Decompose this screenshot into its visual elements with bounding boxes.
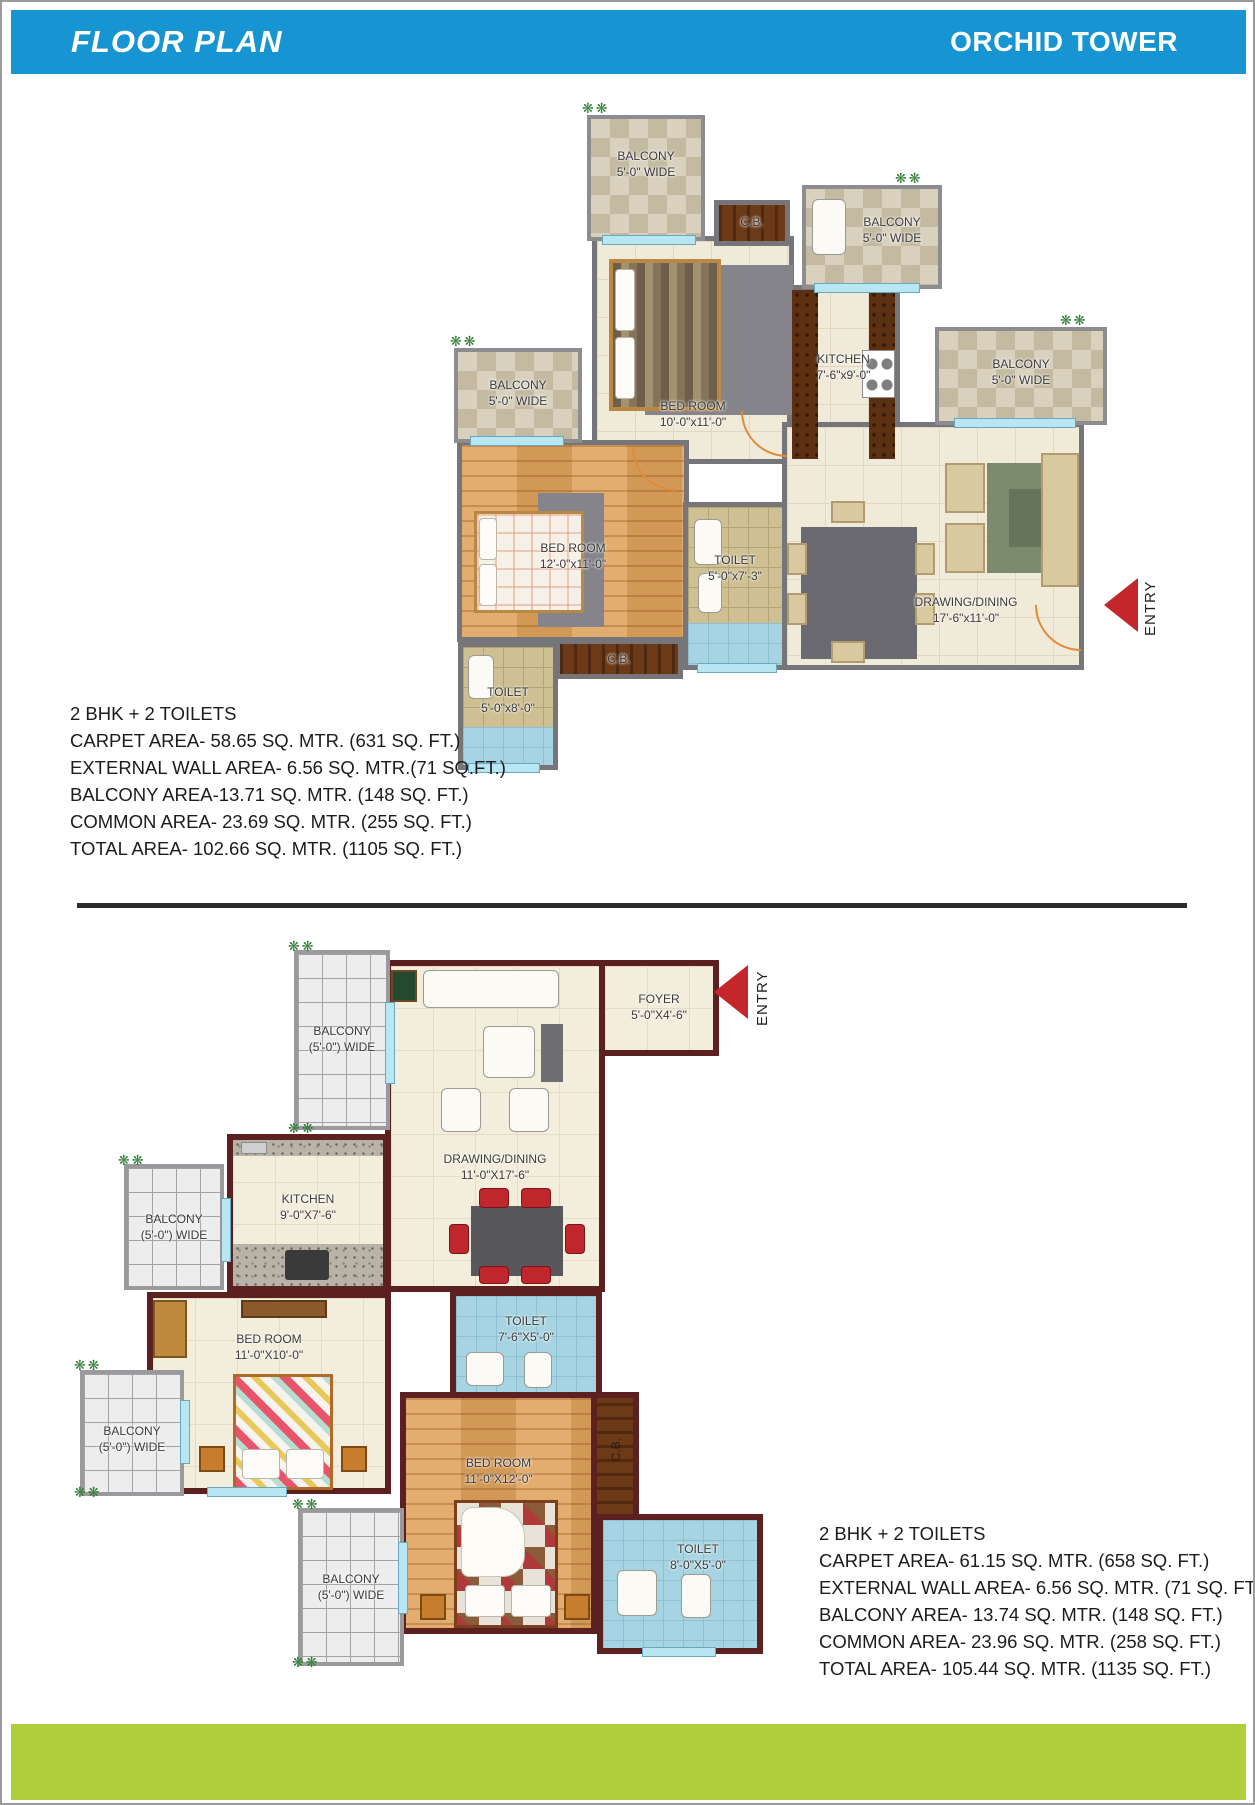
entry-arrow-icon [714,965,748,1019]
pillow [242,1449,280,1479]
tower-name: ORCHID TOWER [950,26,1178,58]
room-balcony-bottom: BALCONY (5'-0") WIDE [298,1508,404,1666]
room-label: BED ROOM 11'-0"X10'-0" [153,1332,385,1363]
pillow [615,269,635,331]
pillow [465,1585,505,1617]
toilet-floor-blue [688,623,782,665]
room-cb-top: C.B. [714,200,790,246]
room-bedroom-top: BED ROOM 10'-0"x11'-0" [592,236,794,464]
window-strip [602,235,696,245]
armchair [441,1088,481,1132]
room-label: KITCHEN 9'-0"X7'-6" [233,1192,383,1223]
room-label: FOYER 5'-0"X4'-6" [605,992,713,1023]
window-strip [814,283,920,293]
room-balcony-top-left: BALCONY 5'-0" WIDE [587,115,705,241]
section-divider [77,903,1187,908]
bed [233,1374,333,1490]
side-table [420,1594,446,1620]
room-label: C.B. [719,215,785,231]
balcony-area: BALCONY AREA-13.71 SQ. MTR. (148 SQ. FT.… [70,781,506,808]
armchair [945,463,985,513]
room-balcony-upper-right: BALCONY 5'-0" WIDE [802,185,942,289]
plant-icon: ❋❋ [288,938,315,955]
room-label: BALCONY (5'-0") WIDE [302,1572,400,1603]
washbasin-icon [812,199,846,255]
plant-icon: ❋❋ [450,333,477,350]
room-toilet-mid: TOILET 5'-0"x7'-3" [683,502,787,670]
room-toilet-1: TOILET 7'-6"X5'-0" [450,1290,602,1398]
plan1-area-statement: 2 BHK + 2 TOILETS CARPET AREA- 58.65 SQ.… [70,700,506,862]
room-label: C.B. [609,1438,623,1461]
total-area: TOTAL AREA- 102.66 SQ. MTR. (1105 SQ. FT… [70,835,506,862]
header-bar: FLOOR PLAN ORCHID TOWER [11,10,1246,74]
sofa-top [423,970,559,1008]
room-label: TOILET 7'-6"X5'-0" [456,1314,596,1345]
armchair [509,1088,549,1132]
room-balcony-top: BALCONY (5'-0") WIDE [294,950,390,1130]
plant-icon: ❋❋ [118,1152,145,1169]
plant-icon: ❋❋ [292,1654,319,1671]
chair [787,543,807,575]
room-balcony-left-upper: BALCONY (5'-0") WIDE [124,1164,224,1290]
dining-table [801,527,917,659]
entry-label: ENTRY [754,966,771,1026]
balcony-area: BALCONY AREA- 13.74 SQ. MTR. (148 SQ. FT… [819,1601,1255,1628]
room-label: BALCONY (5'-0") WIDE [128,1212,220,1243]
chair-red [479,1266,509,1284]
room-label: TOILET 8'-0"X5'-0" [639,1542,757,1573]
pillow [615,337,635,399]
plant-icon: ❋❋ [895,170,922,187]
room-label: BALCONY (5'-0") WIDE [84,1424,180,1455]
sofa-three-seater [1041,453,1079,587]
window-strip [697,663,777,673]
room-bedroom-2: BED ROOM 11'-0"X12'-0" [400,1392,597,1634]
bed [454,1500,558,1628]
window-strip [385,1002,395,1084]
room-cb-bottom: C.B. [555,639,683,679]
tv-unit [541,1024,563,1082]
room-drawing-dining-1: DRAWING/DINING 17'-6"x11'-0" [782,422,1084,670]
footer-bar [11,1724,1246,1800]
room-label: BALCONY 5'-0" WIDE [939,357,1103,388]
room-label: KITCHEN 7'-6"x9'-0" [792,352,895,383]
chair-red [449,1224,469,1254]
carpet-area: CARPET AREA- 61.15 SQ. MTR. (658 SQ. FT.… [819,1547,1255,1574]
side-table [564,1594,590,1620]
coffee-table [483,1026,535,1078]
room-label: DRAWING/DINING 11'-0"X17'-6" [391,1152,599,1183]
plant-icon: ❋❋ [74,1357,101,1374]
room-label: BALCONY 5'-0" WIDE [846,215,938,246]
rug-inner [1009,489,1043,547]
bed [609,259,721,411]
plant-icon: ❋❋ [74,1484,101,1501]
external-wall-area: EXTERNAL WALL AREA- 6.56 SQ. MTR. (71 SQ… [819,1574,1255,1601]
entry-arrow-icon [1104,578,1138,632]
pillow [511,1585,551,1617]
room-bedroom-left: BED ROOM 12'-0"x11'-0" [457,440,689,642]
carpet-area: CARPET AREA- 58.65 SQ. MTR. (631 SQ. FT.… [70,727,506,754]
plan2-area-statement: 2 BHK + 2 TOILETS CARPET AREA- 61.15 SQ.… [819,1520,1255,1682]
common-area: COMMON AREA- 23.69 SQ. MTR. (255 SQ. FT.… [70,808,506,835]
wc-icon [524,1352,552,1388]
stove-icon [285,1250,329,1280]
room-label: C.B. [560,652,678,668]
chair [831,641,865,663]
room-balcony-right: BALCONY 5'-0" WIDE [935,327,1107,425]
window-strip [221,1198,231,1262]
entry-label: ENTRY [1142,578,1159,636]
plant-icon: ❋❋ [288,1120,315,1137]
side-table [199,1446,225,1472]
bhk-title: 2 BHK + 2 TOILETS [819,1520,1255,1547]
window-strip [207,1487,287,1497]
common-area: COMMON AREA- 23.96 SQ. MTR. (258 SQ. FT.… [819,1628,1255,1655]
side-table [341,1446,367,1472]
total-area: TOTAL AREA- 105.44 SQ. MTR. (1135 SQ. FT… [819,1655,1255,1682]
plant-table [391,970,417,1002]
door-arc [632,447,676,491]
room-toilet-2: TOILET 8'-0"X5'-0" [597,1514,763,1654]
pillow [286,1449,324,1479]
chair [831,501,865,523]
room-label: BED ROOM 12'-0"x11'-0" [462,541,684,572]
room-balcony-left-lower: BALCONY (5'-0") WIDE [80,1370,184,1496]
room-label: BALCONY 5'-0" WIDE [591,149,701,180]
sink-icon [241,1142,267,1154]
chair [787,593,807,625]
room-label: BALCONY 5'-0" WIDE [458,378,578,409]
room-kitchen-2: KITCHEN 9'-0"X7'-6" [227,1134,389,1292]
room-label: TOILET 5'-0"x7'-3" [688,553,782,584]
armchair [945,523,985,573]
chair-red [521,1266,551,1284]
chair-red [479,1188,509,1208]
wc-icon [681,1574,711,1618]
room-label: BED ROOM 11'-0"X12'-0" [406,1456,591,1487]
plant-icon: ❋❋ [1060,312,1087,329]
floor-plan-page: FLOOR PLAN ORCHID TOWER BED ROOM 10'-0"x… [0,0,1255,1805]
room-label: BALCONY (5'-0") WIDE [298,1024,386,1055]
duvet [461,1507,525,1577]
room-balcony-left: BALCONY 5'-0" WIDE [454,348,582,443]
window-strip [954,418,1076,428]
washbasin-icon [617,1570,657,1616]
chair-red [565,1224,585,1254]
room-cb-2: C.B. [591,1392,639,1524]
chair-red [521,1188,551,1208]
wardrobe [241,1300,327,1318]
room-foyer: FOYER 5'-0"X4'-6" [599,960,719,1056]
window-strip [180,1400,190,1464]
plant-icon: ❋❋ [582,100,609,117]
page-title: FLOOR PLAN [71,24,283,60]
room-label: BED ROOM 10'-0"x11'-0" [597,399,789,430]
plant-icon: ❋❋ [292,1496,319,1513]
chair [915,543,935,575]
window-strip [642,1647,716,1657]
washbasin-icon [466,1352,504,1386]
bhk-title: 2 BHK + 2 TOILETS [70,700,506,727]
window-strip [470,436,564,446]
external-wall-area: EXTERNAL WALL AREA- 6.56 SQ. MTR.(71 SQ.… [70,754,506,781]
room-drawing-dining-2: DRAWING/DINING 11'-0"X17'-6" [385,960,605,1292]
room-label: DRAWING/DINING 17'-6"x11'-0" [853,595,1079,626]
